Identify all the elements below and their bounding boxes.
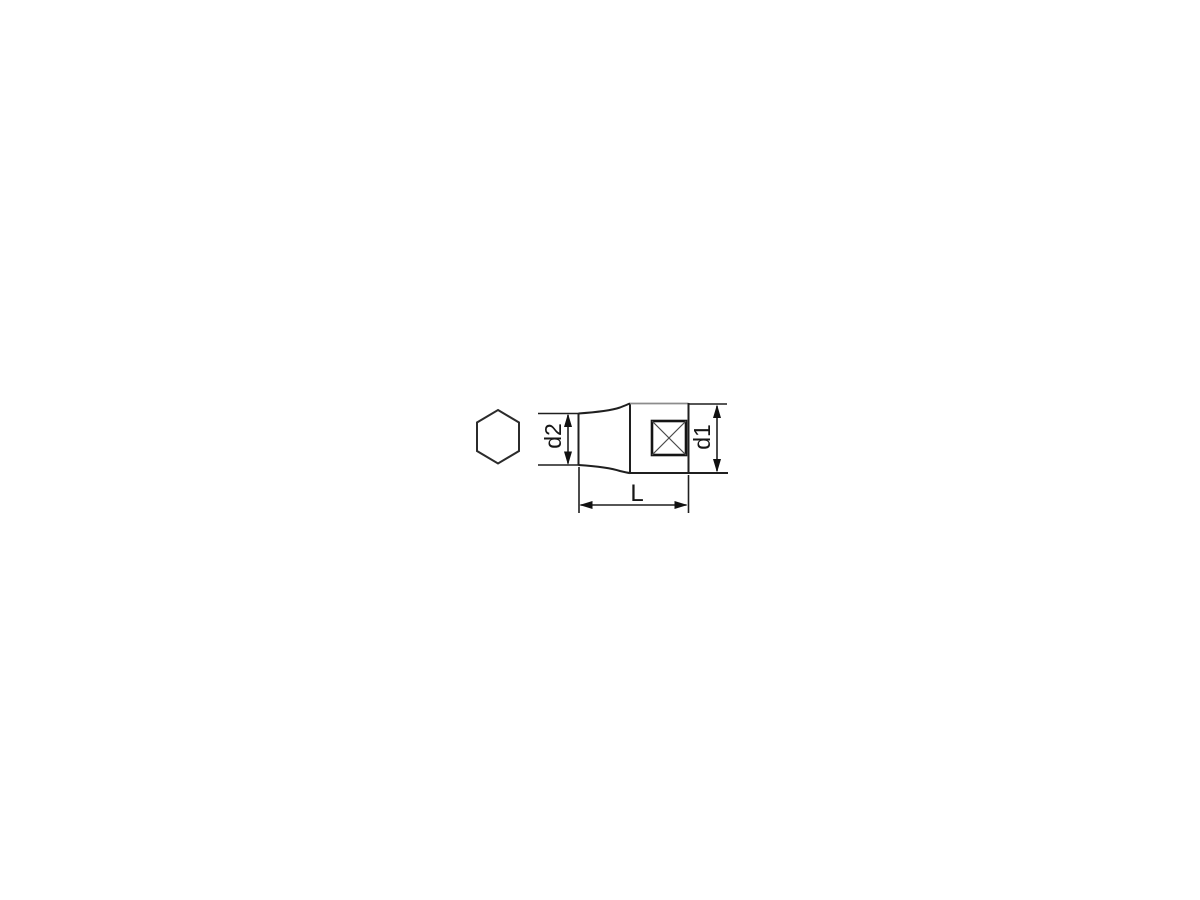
dimension-d2: d2	[538, 414, 580, 466]
neck-top-contour	[579, 403, 631, 413]
d1-arrowhead-up	[713, 405, 721, 419]
L-arrowhead-right	[675, 501, 688, 509]
L-label: L	[630, 480, 643, 507]
dimension-d1: d1	[689, 404, 728, 473]
drawing-canvas: d2 d1 L	[0, 0, 1200, 900]
technical-drawing: d2 d1 L	[0, 0, 1200, 900]
d1-label: d1	[689, 424, 715, 450]
neck-bottom-contour	[579, 465, 631, 473]
hex-end-view	[477, 410, 519, 464]
d2-arrowhead-down	[564, 452, 572, 466]
d2-label: d2	[540, 423, 566, 449]
L-arrowhead-left	[580, 501, 593, 509]
d1-arrowhead-down	[713, 459, 721, 473]
hexagon-outline	[477, 410, 519, 464]
